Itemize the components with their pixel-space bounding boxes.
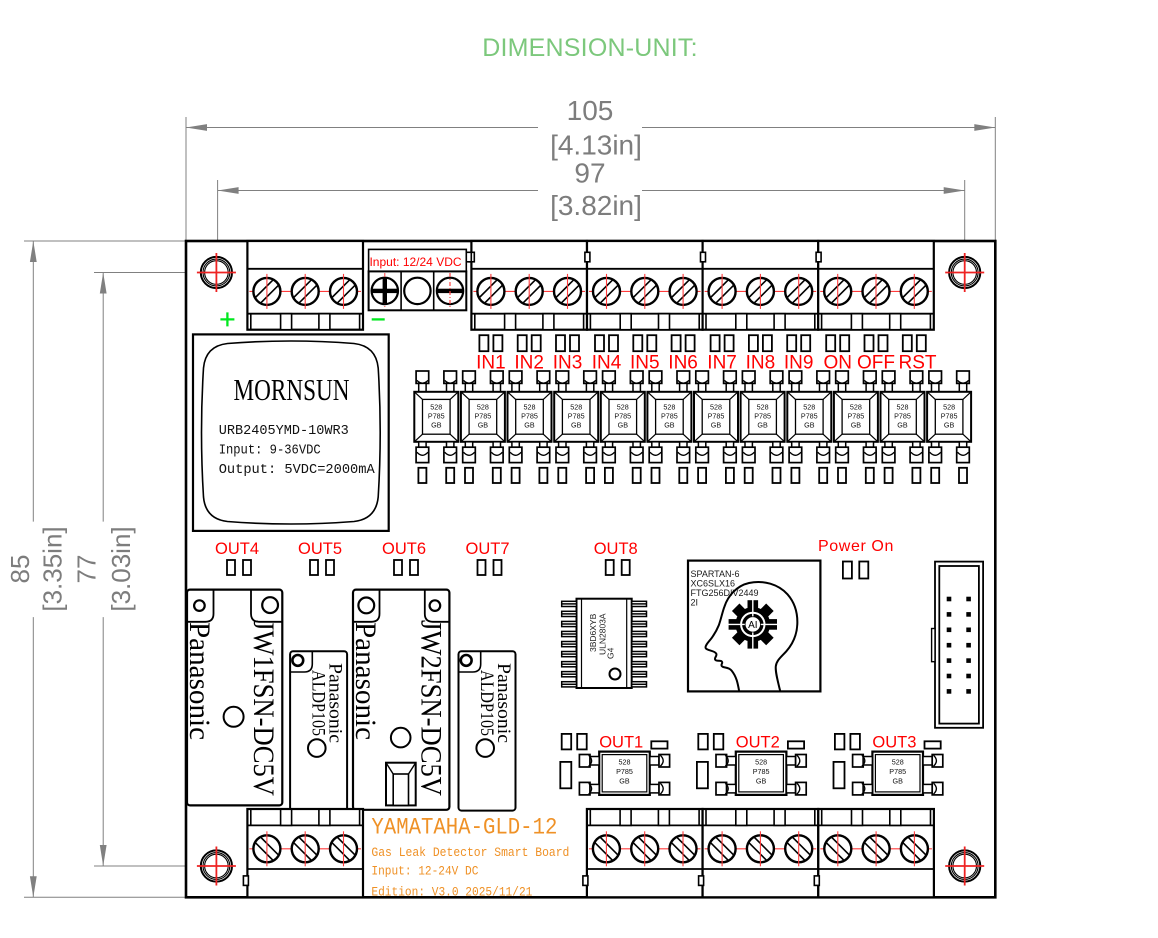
svg-text:105: 105 — [567, 95, 614, 126]
svg-text:[3.82in]: [3.82in] — [550, 190, 642, 221]
svg-text:DIMENSION-UNIT:: DIMENSION-UNIT: — [482, 34, 698, 62]
svg-text:Panasonic: Panasonic — [183, 622, 216, 740]
svg-text:OUT6: OUT6 — [382, 540, 426, 558]
svg-text:URB2405YMD-10WR3: URB2405YMD-10WR3 — [219, 423, 349, 439]
svg-text:MORNSUN: MORNSUN — [234, 372, 350, 407]
svg-text:Output: 5VDC=2000mA: Output: 5VDC=2000mA — [219, 462, 376, 478]
svg-text:Gas Leak Detector Smart Board: Gas Leak Detector Smart Board — [371, 845, 569, 860]
svg-text:ALDP105: ALDP105 — [308, 670, 329, 736]
svg-text:2I: 2I — [691, 598, 699, 608]
svg-text:AI: AI — [748, 620, 757, 631]
svg-text:[4.13in]: [4.13in] — [550, 130, 642, 161]
svg-text:G4: G4 — [606, 647, 616, 659]
svg-text:XC6SLX16: XC6SLX16 — [691, 579, 736, 589]
svg-text:3BD6XYB: 3BD6XYB — [588, 613, 598, 652]
svg-text:JW2FSN-DC5V: JW2FSN-DC5V — [415, 620, 448, 796]
svg-text:[3.03in]: [3.03in] — [106, 526, 136, 611]
svg-text:Input: 9-36VDC: Input: 9-36VDC — [219, 442, 321, 458]
svg-text:FTG256DIV2449: FTG256DIV2449 — [691, 588, 759, 598]
svg-text:Panasonic: Panasonic — [349, 622, 382, 740]
svg-text:SPARTAN-6: SPARTAN-6 — [691, 569, 740, 579]
svg-text:OUT5: OUT5 — [298, 540, 342, 558]
svg-text:OUT3: OUT3 — [872, 734, 916, 752]
svg-text:OUT1: OUT1 — [599, 734, 643, 752]
svg-text:[3.35in]: [3.35in] — [38, 526, 68, 611]
svg-text:ALDP105: ALDP105 — [476, 670, 497, 736]
svg-text:OUT8: OUT8 — [594, 540, 638, 558]
svg-text:JW1FSN-DC5V: JW1FSN-DC5V — [247, 620, 280, 796]
svg-text:OUT7: OUT7 — [465, 540, 509, 558]
svg-text:Input: 12/24 VDC: Input: 12/24 VDC — [369, 255, 461, 269]
svg-text:Edition: V3.0 2025/11/21: Edition: V3.0 2025/11/21 — [371, 884, 532, 899]
svg-text:YAMATAHA-GLD-12: YAMATAHA-GLD-12 — [371, 815, 557, 841]
svg-text:Input: 12-24V DC: Input: 12-24V DC — [371, 864, 478, 879]
svg-text:OUT2: OUT2 — [736, 734, 780, 752]
svg-text:97: 97 — [574, 158, 605, 189]
svg-text:Power On: Power On — [818, 538, 894, 555]
svg-text:85: 85 — [5, 555, 35, 584]
svg-text:77: 77 — [72, 555, 102, 584]
svg-text:OUT4: OUT4 — [215, 540, 259, 558]
